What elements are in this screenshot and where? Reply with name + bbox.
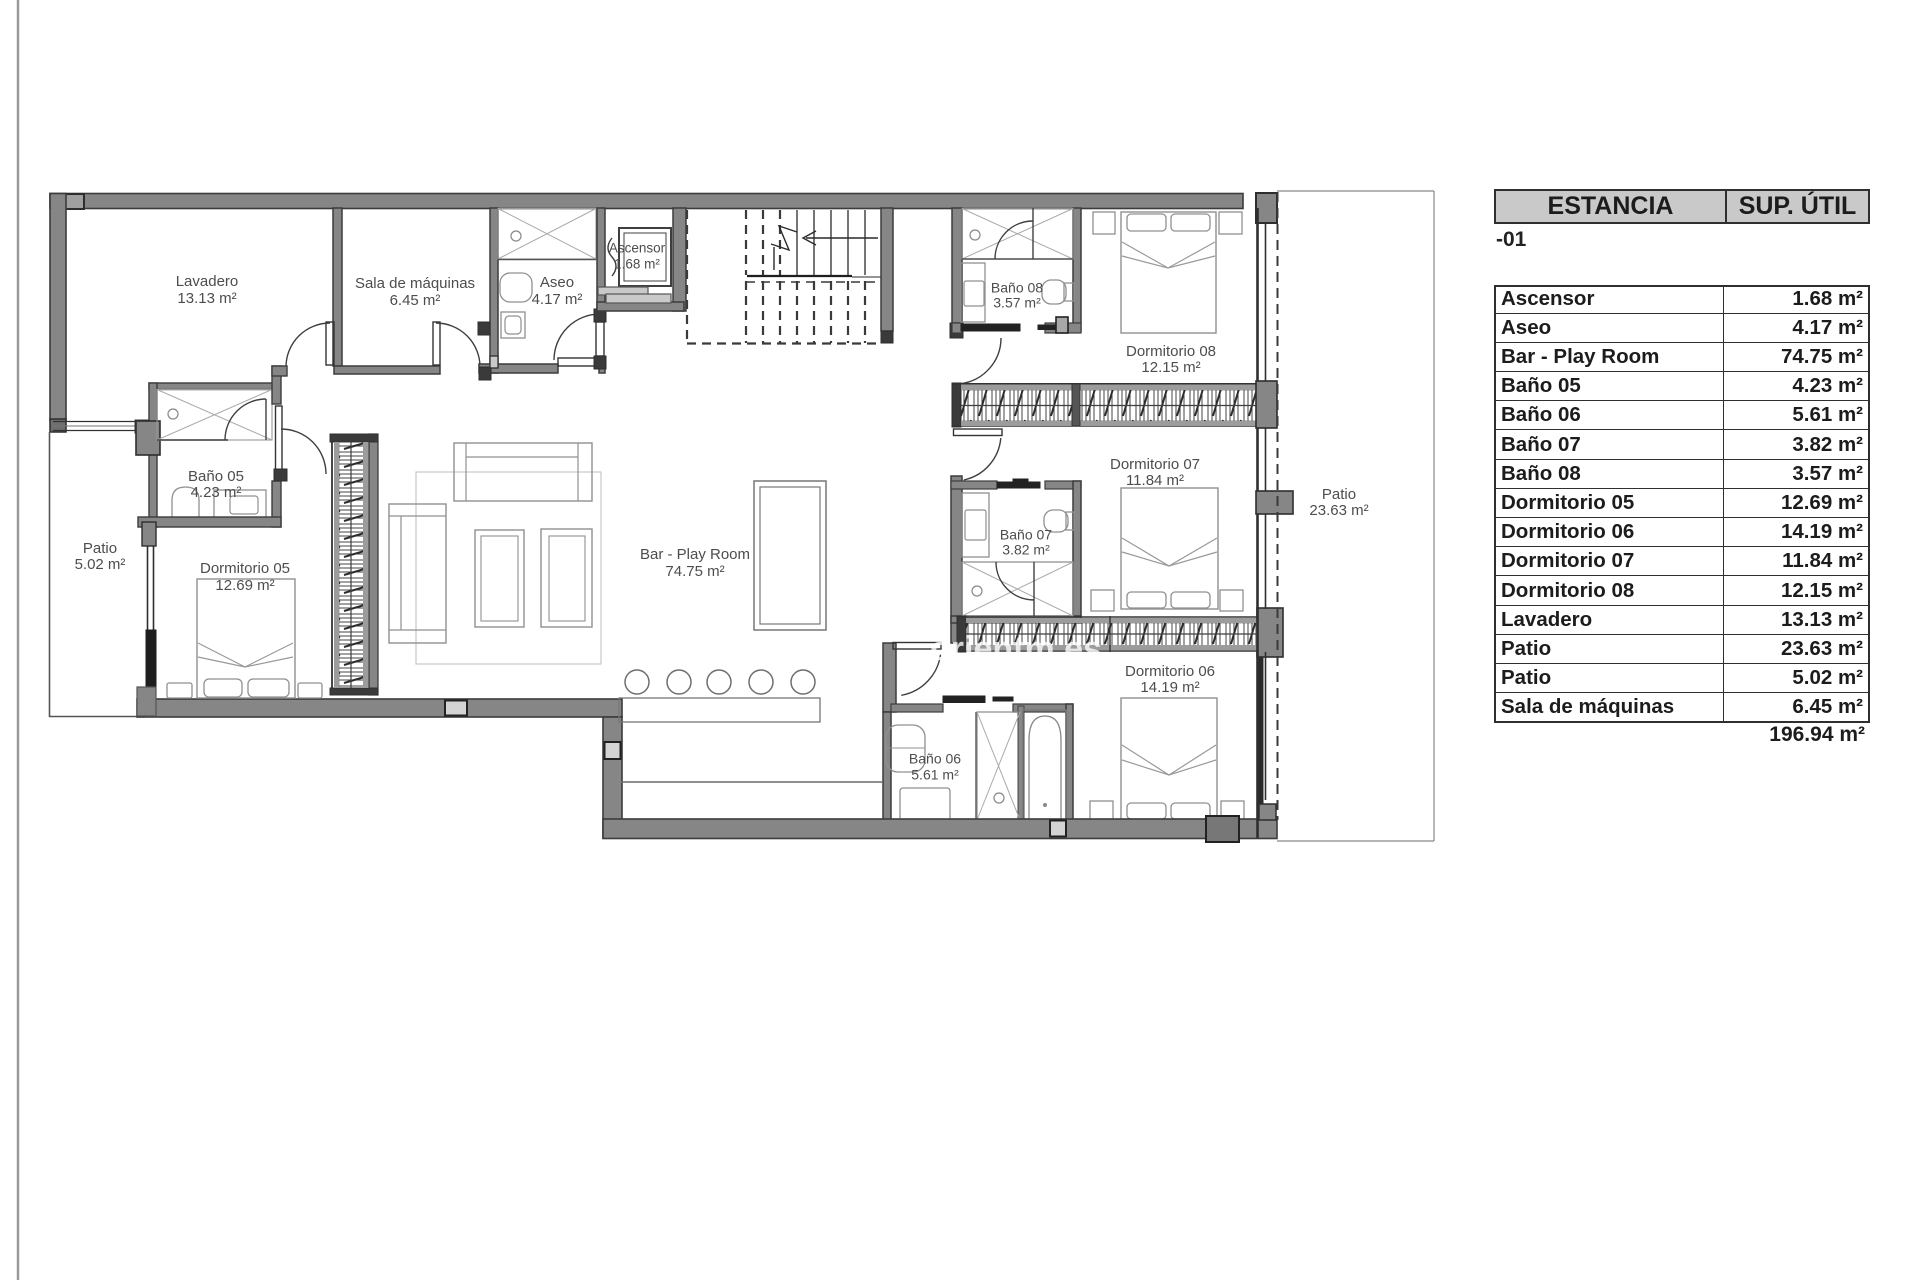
svg-text:Aseo: Aseo (540, 274, 574, 291)
svg-text:Dormitorio 06: Dormitorio 06 (1125, 663, 1215, 680)
svg-text:5.02 m²: 5.02 m² (75, 556, 126, 573)
svg-text:Dormitorio 08: Dormitorio 08 (1126, 343, 1216, 360)
svg-text:Patio: Patio (1322, 486, 1356, 503)
svg-text:Lavadero: Lavadero (176, 273, 239, 290)
svg-text:11.84 m²: 11.84 m² (1126, 472, 1184, 489)
svg-text:Dormitorio 05: Dormitorio 05 (200, 560, 290, 577)
svg-text:14.19 m²: 14.19 m² (1140, 679, 1199, 696)
svg-text:Baño 07: Baño 07 (1000, 527, 1052, 543)
svg-text:Baño 08: Baño 08 (991, 280, 1043, 296)
svg-text:5.61 m²: 5.61 m² (911, 767, 959, 783)
svg-text:6.45 m²: 6.45 m² (390, 292, 441, 309)
svg-text:12.69 m²: 12.69 m² (215, 577, 274, 594)
svg-text:23.63 m²: 23.63 m² (1309, 502, 1368, 519)
svg-text:Baño 05: Baño 05 (188, 468, 244, 485)
svg-text:3.57 m²: 3.57 m² (993, 295, 1041, 311)
svg-text:Patio: Patio (83, 540, 117, 557)
svg-text:orientm.es: orientm.es (930, 630, 1102, 668)
svg-text:12.15 m²: 12.15 m² (1141, 359, 1200, 376)
svg-text:1.68 m²: 1.68 m² (614, 257, 660, 272)
svg-text:Dormitorio 07: Dormitorio 07 (1110, 456, 1200, 473)
svg-text:Bar - Play Room: Bar - Play Room (640, 546, 750, 563)
svg-text:Sala de máquinas: Sala de máquinas (355, 275, 475, 292)
svg-text:Ascensor: Ascensor (609, 241, 666, 256)
svg-text:74.75 m²: 74.75 m² (665, 563, 724, 580)
svg-text:3.82 m²: 3.82 m² (1002, 542, 1050, 558)
svg-text:4.23 m²: 4.23 m² (191, 484, 242, 501)
svg-text:Baño 06: Baño 06 (909, 751, 961, 767)
svg-text:4.17 m²: 4.17 m² (532, 291, 583, 308)
svg-text:13.13 m²: 13.13 m² (177, 290, 236, 307)
